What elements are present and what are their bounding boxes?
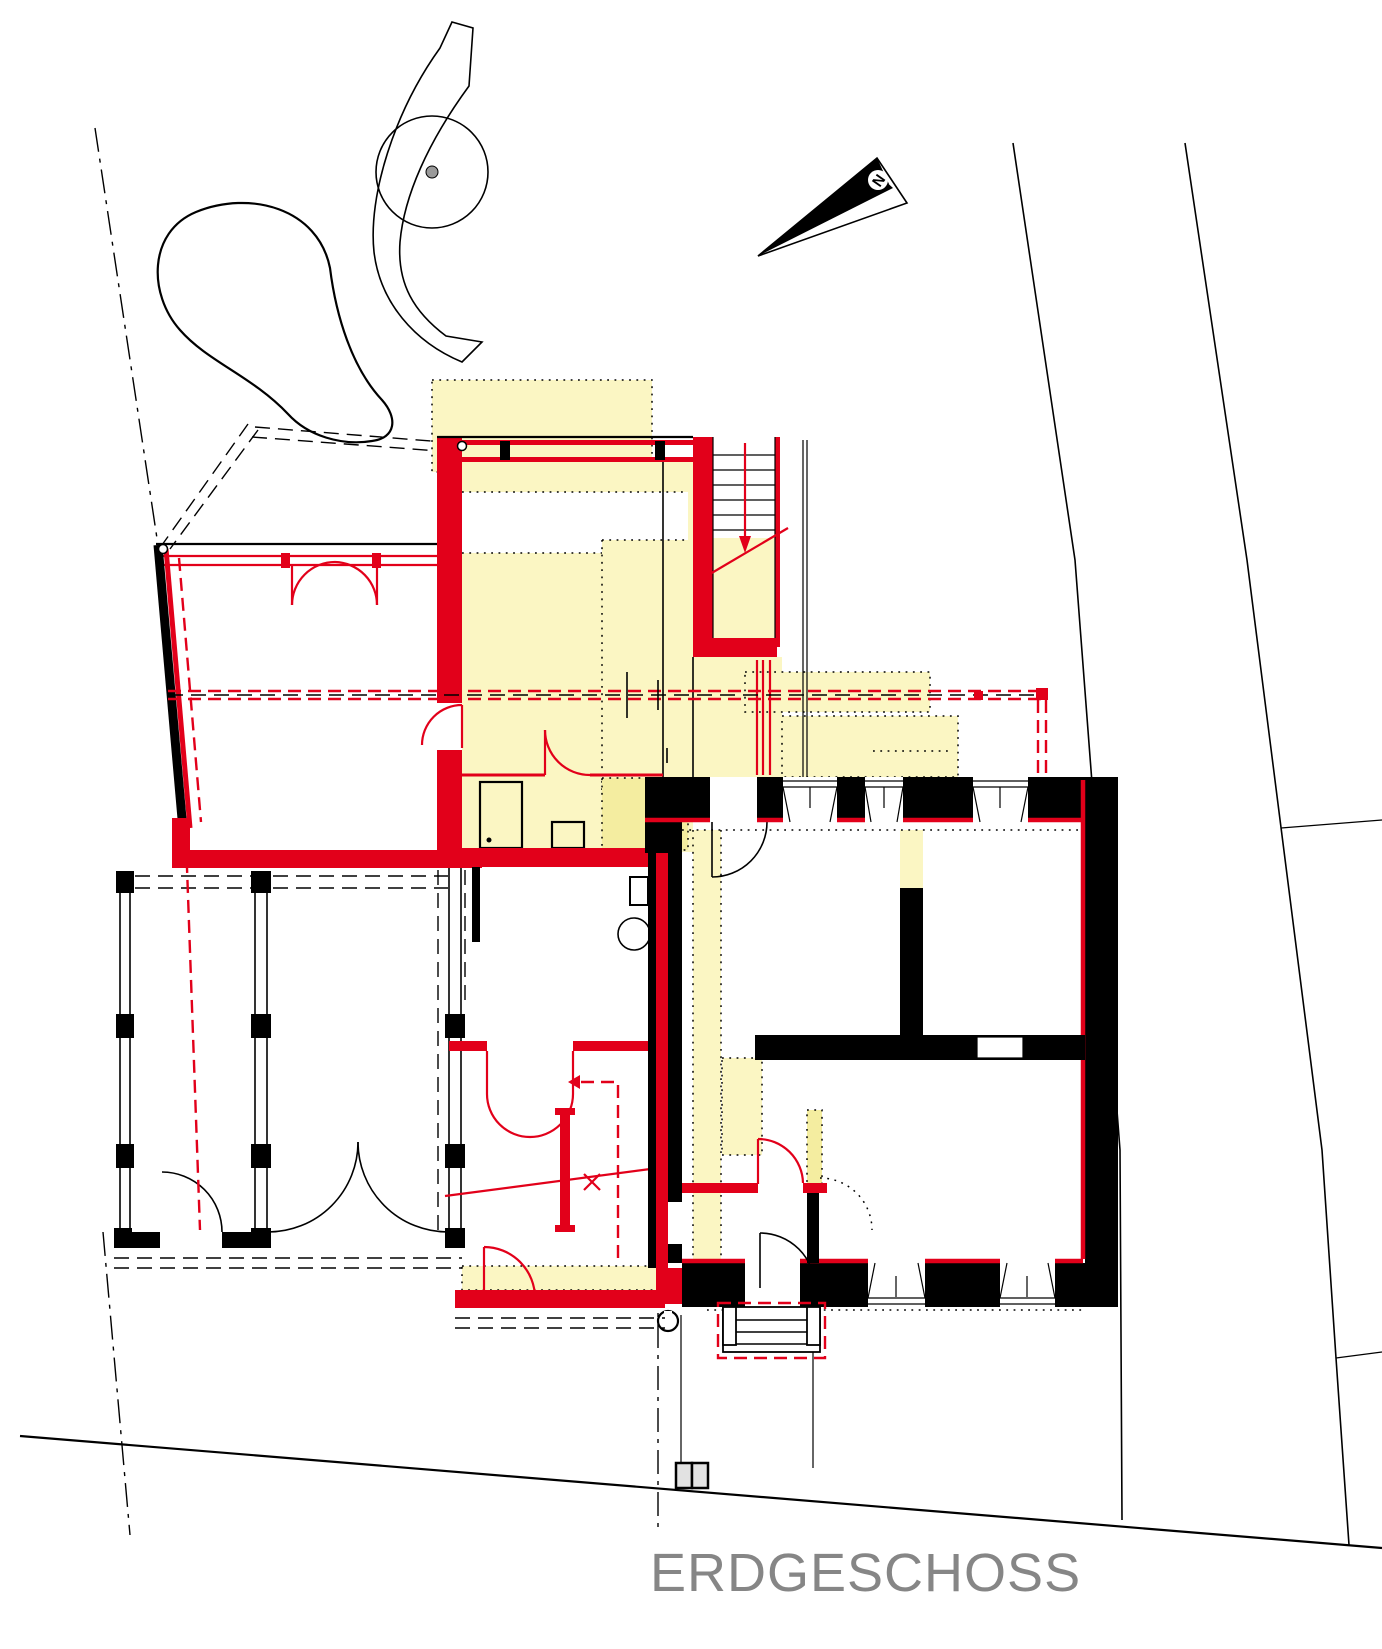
zone-b bbox=[782, 716, 958, 777]
future-door-arc bbox=[820, 1178, 872, 1230]
floor-plan-sheet: N bbox=[0, 0, 1382, 1649]
annex-link-door bbox=[422, 703, 462, 750]
house-west-wall bbox=[668, 822, 682, 1202]
barn-door-swing-left bbox=[268, 1142, 358, 1232]
zone-hall bbox=[722, 1058, 762, 1155]
house-window bbox=[973, 777, 1028, 822]
entry-steps bbox=[718, 1303, 825, 1358]
barn-door-swing-small bbox=[162, 1172, 222, 1232]
house-window bbox=[783, 777, 837, 822]
zone-duct-strip bbox=[693, 830, 721, 1290]
basin-fixture bbox=[618, 918, 650, 950]
gate-icon bbox=[676, 1463, 692, 1488]
boiler-fixture bbox=[630, 877, 648, 905]
house-red-wall bbox=[682, 1183, 827, 1193]
shower-tray bbox=[480, 782, 522, 848]
north-arrow-icon: N bbox=[758, 158, 907, 256]
spine-wall bbox=[656, 853, 668, 1268]
site-branch-line-1 bbox=[1281, 820, 1382, 828]
zone-south-strip bbox=[462, 1266, 662, 1290]
drawing-title: ERDGESCHOSS bbox=[650, 1542, 1070, 1604]
center-building bbox=[445, 853, 706, 1328]
addition-west-wall bbox=[437, 437, 462, 852]
house-cross-wall bbox=[755, 1035, 1085, 1060]
zone-wall-strip bbox=[900, 830, 923, 888]
zone-strip-2 bbox=[807, 1110, 822, 1193]
boundary-line-bottom-left bbox=[103, 1232, 130, 1535]
pond-tie-lines bbox=[162, 424, 456, 549]
annex-south-red-wall bbox=[172, 850, 482, 868]
new-wall-stub bbox=[560, 1113, 570, 1225]
survey-point-2 bbox=[458, 442, 467, 451]
barn-red-dashed bbox=[186, 840, 200, 1230]
site-branch-line-2 bbox=[1336, 1352, 1382, 1358]
house-mid-wall bbox=[900, 888, 923, 1035]
hedge-crescent bbox=[373, 22, 482, 362]
boundary-line-top-left bbox=[95, 128, 158, 545]
road-edge-east bbox=[1185, 143, 1349, 1545]
annex-room bbox=[156, 544, 482, 868]
house-east-wall bbox=[1085, 777, 1118, 1307]
addition-south-wall bbox=[437, 848, 667, 867]
tree-trunk-dot bbox=[426, 166, 438, 178]
house-red-door bbox=[758, 1139, 803, 1184]
street-line bbox=[20, 1436, 1382, 1548]
barn-building bbox=[114, 840, 465, 1268]
center-south-wall bbox=[455, 1290, 665, 1308]
survey-point-1 bbox=[159, 545, 168, 554]
barn-door-swing-right bbox=[358, 1142, 448, 1232]
house-window bbox=[868, 1263, 925, 1307]
house-window bbox=[1000, 1263, 1055, 1307]
floor-plan-drawing: N bbox=[0, 0, 1382, 1649]
annex-double-door bbox=[292, 562, 377, 605]
house-window bbox=[865, 777, 903, 822]
pond bbox=[158, 203, 393, 442]
sliding-door-dashed bbox=[576, 1082, 618, 1258]
